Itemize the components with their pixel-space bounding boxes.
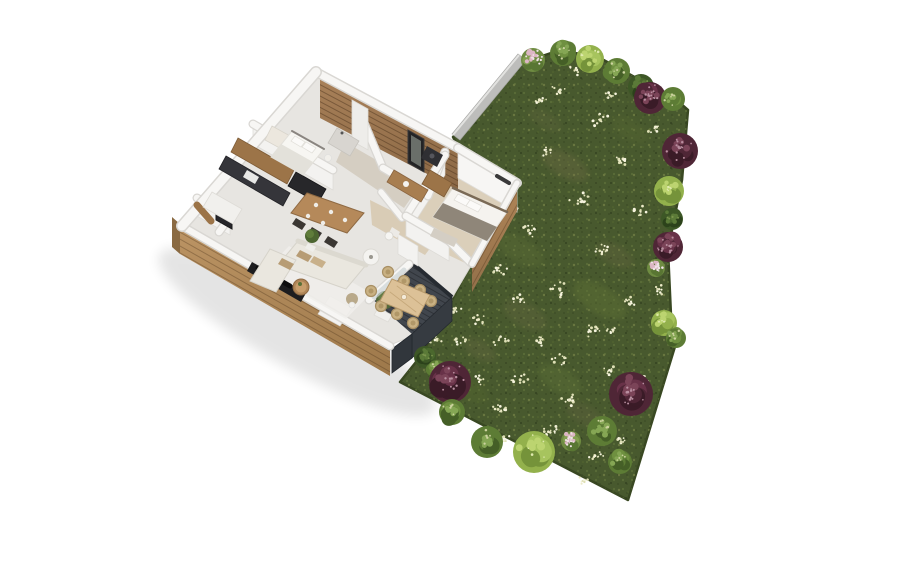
bush-purple-2-flower-dot <box>683 157 685 159</box>
flower-dot <box>519 382 521 384</box>
bush-purple-1-flower-dot <box>653 90 655 92</box>
flower-dot <box>612 329 615 332</box>
flower-dot <box>550 425 552 427</box>
flower-dot <box>571 393 574 396</box>
flower-dot <box>603 249 605 251</box>
flower-dot <box>656 290 658 292</box>
flower-dot <box>513 301 515 303</box>
terrace-chair-seat <box>395 312 400 317</box>
bush-green-top-2-flower-dot <box>611 62 613 64</box>
flower-dot <box>583 195 585 197</box>
flower-dot <box>480 384 482 386</box>
bush-purple-1-flower-dot <box>644 98 646 100</box>
bush-purple-4-flower-dot <box>631 390 633 392</box>
bush-green-tip-flower-dot <box>624 456 626 458</box>
vase <box>349 302 355 308</box>
flower-dot <box>523 301 525 303</box>
flower-dot <box>618 161 621 164</box>
bush-green-top-1-highlight <box>556 45 560 49</box>
bush-lightgreen-right-flower-dot <box>667 190 668 191</box>
bush-purple-5-flower-dot <box>453 372 455 374</box>
flower-dot <box>505 440 507 442</box>
bush-darkgreen-right-flower-dot <box>671 216 673 218</box>
flower-dot <box>564 88 566 90</box>
flower-dot <box>492 406 494 408</box>
toilet <box>385 232 393 240</box>
side-table-decor <box>369 255 373 259</box>
flower-dot <box>550 430 552 432</box>
bush-pink-bottom-flower-dot <box>571 433 573 435</box>
flower-dot <box>514 375 516 377</box>
flower-dot <box>591 458 594 461</box>
flower-dot <box>639 213 642 216</box>
bush-purple-4-flower-dot <box>627 391 630 394</box>
flower-dot <box>612 365 615 368</box>
bush-lightgreen-bottom-flower-dot <box>531 453 534 456</box>
flower-dot <box>462 336 464 338</box>
bush-darkgreen-right-flower-dot <box>667 217 669 219</box>
bush-green-right-flower-dot <box>678 330 680 332</box>
flower-dot <box>581 483 583 485</box>
flower-dot <box>594 455 596 457</box>
bush-green-tip-flower-dot <box>622 454 624 456</box>
bush-green-top-1-flower-dot <box>568 50 569 51</box>
flower-dot <box>611 369 613 371</box>
bush-purple-5-flower-dot <box>449 380 451 382</box>
bush-green-top-3-highlight <box>666 93 670 97</box>
flower-dot <box>456 311 458 313</box>
flower-dot <box>561 364 563 366</box>
bush-purple-3-flower-dot <box>661 247 664 250</box>
flower-dot <box>568 399 571 402</box>
flower-dot <box>527 225 529 227</box>
bush-green-bottom-1-flower-dot <box>605 427 607 429</box>
bush-purple-5-highlight <box>435 374 442 381</box>
flower-dot <box>620 439 622 441</box>
flower-dot <box>595 250 597 252</box>
flower-dot <box>562 355 564 357</box>
terrace-chair-seat <box>402 279 407 284</box>
bush-purple-3-flower-dot <box>657 247 659 249</box>
flower-dot <box>616 156 618 158</box>
bush-purple-4-flower-dot <box>630 388 632 390</box>
bush-lightgreen-bottom-highlight <box>534 437 541 444</box>
bush-lightgreen-right-flower-dot <box>670 188 672 190</box>
flower-dot <box>563 356 566 359</box>
bush-pink-top-highlight <box>526 50 531 55</box>
flower-dot <box>520 375 522 377</box>
flower-dot <box>623 163 626 166</box>
dining-plate <box>321 221 325 225</box>
bush-green-right-flower-dot <box>669 335 671 337</box>
bush-pink-right-flower-dot <box>651 261 653 263</box>
flower-dot <box>500 272 502 274</box>
bush-purple-5-flower-dot <box>455 384 457 386</box>
bush-pink-bottom-highlight <box>564 432 568 436</box>
flower-dot <box>610 332 612 334</box>
bush-green-top-1-highlight <box>565 45 569 49</box>
bush-lightgreen-bottom-highlight <box>516 444 523 451</box>
flower-dot <box>454 307 457 310</box>
bush-green-top-1-highlight <box>562 50 567 55</box>
bush-green-bottom-3-flower-dot <box>450 405 452 407</box>
flower-dot <box>606 115 609 118</box>
flower-dot <box>605 92 607 94</box>
bush-pink-top-flower-dot <box>532 54 534 56</box>
bush-green-tip-flower-dot <box>620 459 622 461</box>
flower-dot <box>523 373 525 375</box>
flower-dot <box>598 249 601 252</box>
flower-dot <box>657 294 659 296</box>
flower-dot <box>482 378 484 380</box>
plant-living-hi <box>306 230 314 238</box>
terrace-chair-seat <box>411 321 416 326</box>
flower-dot <box>577 71 579 73</box>
flower-dot <box>583 479 585 481</box>
flower-dot <box>605 249 608 252</box>
washer-door <box>430 154 435 159</box>
flower-dot <box>587 332 589 334</box>
flower-dot <box>545 151 547 153</box>
flower-dot <box>660 289 662 291</box>
flower-dot <box>543 430 546 433</box>
flower-dot <box>553 361 556 364</box>
flower-dot <box>563 282 566 285</box>
bush-green-bottom-3-highlight <box>445 406 450 411</box>
flower-dot <box>519 293 522 296</box>
flower-dot <box>516 296 518 298</box>
bush-green-top-1-flower-dot <box>561 57 563 59</box>
bush-green-top-2-flower-dot <box>613 76 615 78</box>
bush-purple-4-flower-dot <box>627 402 629 404</box>
bush-purple-1-flower-dot <box>644 93 646 95</box>
isometric-floor-plan-scene <box>0 0 900 574</box>
flower-dot <box>607 91 610 94</box>
flower-dot <box>620 441 623 444</box>
flower-dot <box>579 476 581 478</box>
flower-dot <box>507 339 510 342</box>
bush-purple-4-flower-dot <box>629 398 632 401</box>
bush-darkgreen-right-highlight <box>665 210 669 214</box>
flower-dot <box>499 405 502 408</box>
flower-dot <box>559 353 561 355</box>
flower-dot <box>541 97 543 99</box>
flower-dot <box>660 284 663 287</box>
bush-darkgreen-terrace-highlight <box>422 348 426 352</box>
dining-plate <box>343 218 347 222</box>
bush-pink-top-highlight <box>525 59 529 63</box>
flower-dot <box>640 211 642 213</box>
flower-dot <box>512 380 515 383</box>
flower-dot <box>512 297 515 300</box>
bush-purple-4-flower-dot <box>626 386 628 388</box>
bush-purple-3-flower-dot <box>672 237 674 239</box>
bush-purple-1-highlight <box>639 95 643 99</box>
bush-green-tip-highlight <box>617 451 621 455</box>
flower-dot <box>603 368 605 370</box>
flower-dot <box>604 245 606 247</box>
bush-pink-bottom-flower-dot <box>566 443 568 445</box>
bush-green-top-2-flower-dot <box>616 69 618 71</box>
flower-dot <box>559 281 561 283</box>
bush-green-top-2-highlight <box>618 63 623 68</box>
bush-pink-right-flower-dot <box>657 263 659 265</box>
flower-dot <box>496 269 499 272</box>
bush-purple-4-highlight <box>631 383 639 391</box>
bush-green-top-3-highlight <box>672 96 676 100</box>
bush-green-bottom-1-highlight <box>591 429 596 434</box>
flower-dot <box>553 87 555 89</box>
flower-dot <box>478 381 480 383</box>
flower-dot <box>435 338 437 340</box>
flower-dot <box>607 97 609 99</box>
flower-dot <box>506 267 508 269</box>
flower-dot <box>568 199 570 201</box>
bush-purple-2-flower-dot <box>690 143 692 145</box>
terrace-chair-seat <box>386 270 391 275</box>
flower-dot <box>597 456 599 458</box>
bush-purple-1-flower-dot <box>654 84 656 86</box>
bush-purple-4-flower-dot <box>631 398 633 400</box>
flower-dot <box>579 198 582 201</box>
flower-dot <box>477 377 480 380</box>
flower-dot <box>610 95 612 97</box>
flower-dot <box>606 246 609 249</box>
bush-green-top-3-flower-dot <box>673 94 675 96</box>
flower-dot <box>549 149 552 152</box>
bush-darkgreen-terrace-flower-dot <box>424 354 426 356</box>
bush-pink-top-flower-dot <box>541 56 543 58</box>
flower-dot <box>623 159 625 161</box>
bush-purple-1-flower-dot <box>651 92 653 94</box>
bush-green-top-3-flower-dot <box>670 96 672 98</box>
bush-pink-right-flower-dot <box>656 265 658 267</box>
flower-dot <box>588 324 590 326</box>
bush-green-bottom-3-flower-dot <box>453 413 455 415</box>
bush-green-top-2-flower-dot <box>623 71 626 74</box>
bush-pink-bottom-flower-dot <box>570 445 572 447</box>
bush-green-bottom-2-flower-dot <box>489 435 491 437</box>
dining-plate <box>329 210 333 214</box>
bush-darkgreen-terrace-flower-dot <box>431 355 433 357</box>
flower-dot <box>657 125 659 127</box>
flower-dot <box>464 338 467 341</box>
flower-dot <box>551 86 553 88</box>
flower-dot <box>570 67 572 69</box>
flower-dot <box>555 428 557 430</box>
bush-purple-5-flower-dot <box>448 367 450 369</box>
flower-dot <box>498 339 500 341</box>
terrace-centerpiece <box>401 294 406 299</box>
bush-lightgreen-bottom-highlight <box>527 440 535 448</box>
bush-lightgreen-top-highlight <box>588 53 593 58</box>
bush-purple-1-flower-dot <box>650 94 652 96</box>
bush-green-tip-flower-dot <box>616 459 618 461</box>
bush-lightgreen-top-flower-dot <box>582 54 584 56</box>
flower-dot <box>499 336 501 338</box>
flower-dot <box>660 293 663 296</box>
flower-dot <box>502 273 505 276</box>
flower-dot <box>594 329 597 332</box>
flower-dot <box>527 230 529 232</box>
flower-dot <box>559 296 562 299</box>
bush-purple-5-flower-dot <box>442 365 444 367</box>
flower-dot <box>554 284 556 286</box>
flower-dot <box>583 481 585 483</box>
flower-dot <box>656 127 658 129</box>
bush-lightgreen-bottom-flower-dot <box>543 456 544 457</box>
flower-dot <box>494 408 497 411</box>
flower-dot <box>602 455 604 457</box>
bush-lightgreen-top-flower-dot <box>594 50 596 52</box>
flower-dot <box>460 308 462 310</box>
flower-dot <box>519 378 522 381</box>
flower-dot <box>535 339 538 342</box>
flower-dot <box>630 302 632 304</box>
bush-purple-5-flower-dot <box>451 377 453 379</box>
bush-purple-5-flower-dot <box>453 388 455 390</box>
bush-purple-1-flower-dot <box>648 86 650 88</box>
flower-dot <box>582 200 585 203</box>
flower-dot <box>483 315 485 317</box>
flower-dot <box>532 236 534 238</box>
flower-dot <box>547 430 550 433</box>
bush-lightgreen-right-2-highlight <box>661 311 667 317</box>
bush-pink-bottom-flower-dot <box>568 442 570 444</box>
flower-dot <box>586 203 588 205</box>
flower-dot <box>460 342 462 344</box>
flower-dot <box>645 211 648 214</box>
flower-dot <box>588 456 590 458</box>
bush-green-tip-highlight <box>610 461 615 466</box>
bush-lightgreen-top-highlight <box>587 61 592 66</box>
flower-dot <box>593 124 596 127</box>
flower-dot <box>478 374 480 376</box>
terrace-chair-seat <box>379 304 384 309</box>
bush-darkgreen-right-flower-dot <box>668 218 670 220</box>
flower-dot <box>608 369 611 372</box>
flower-dot <box>534 228 536 230</box>
bush-purple-2-flower-dot <box>666 150 668 152</box>
bush-green-tip-flower-dot <box>618 457 620 459</box>
flower-dot <box>620 437 622 439</box>
flower-dot <box>454 339 456 341</box>
shower-head <box>341 132 344 135</box>
bush-purple-5-flower-dot <box>455 376 457 378</box>
flower-dot <box>529 232 532 235</box>
flower-dot <box>545 149 547 151</box>
bed1-nightstand <box>325 155 332 162</box>
flower-dot <box>614 93 617 96</box>
flower-dot <box>633 208 636 211</box>
flower-dot <box>542 154 544 156</box>
flower-dot <box>500 409 502 411</box>
flower-dot <box>601 251 603 253</box>
bush-green-right-highlight <box>669 339 672 342</box>
flower-dot <box>599 330 601 332</box>
dining-plate <box>314 203 318 207</box>
flower-dot <box>456 343 459 346</box>
bush-purple-1-flower-dot <box>650 98 652 100</box>
coffee-table-plant <box>298 282 302 286</box>
bush-lightgreen-bottom-flower-dot <box>528 448 529 449</box>
flower-dot <box>503 438 505 440</box>
bush-purple-5-flower-dot <box>459 366 461 368</box>
bush-darkgreen-top-flower-dot <box>646 80 648 82</box>
flower-dot <box>476 314 478 316</box>
flower-dot <box>556 427 558 429</box>
bush-green-right-flower-dot <box>672 333 674 335</box>
bush-pink-top-highlight <box>529 58 532 61</box>
flower-dot <box>520 298 523 301</box>
bush-purple-3-flower-dot <box>662 239 664 241</box>
flower-dot <box>562 362 565 365</box>
flower-dot <box>587 335 589 337</box>
flower-dot <box>540 344 542 346</box>
flower-dot <box>519 301 521 303</box>
bush-pink-top-flower-dot <box>532 58 534 60</box>
flower-dot <box>598 119 600 121</box>
flower-dot <box>610 371 612 373</box>
flower-dot <box>498 270 500 272</box>
bush-purple-1-flower-dot <box>656 97 658 99</box>
bush-purple-5-flower-dot <box>462 379 464 381</box>
bush-lightgreen-bottom-flower-dot <box>543 441 545 443</box>
flower-dot <box>539 99 541 101</box>
bath-basin <box>403 181 409 187</box>
flower-dot <box>543 428 545 430</box>
flower-dot <box>556 93 559 96</box>
flower-dot <box>474 323 477 326</box>
bush-green-bottom-2-highlight <box>486 441 491 446</box>
bush-pink-bottom-flower-dot <box>565 439 567 441</box>
flower-dot <box>550 152 552 154</box>
flower-dot <box>453 310 455 312</box>
flower-dot <box>538 336 540 338</box>
bush-purple-3-flower-dot <box>658 249 660 251</box>
flower-dot <box>559 90 561 92</box>
bush-pink-bottom-flower-dot <box>570 440 572 442</box>
flower-dot <box>481 321 484 324</box>
flower-dot <box>560 397 563 400</box>
bush-purple-5-flower-dot <box>450 386 452 388</box>
bush-purple-2-flower-dot <box>675 144 677 146</box>
bush-purple-3-flower-dot <box>666 244 668 246</box>
flower-dot <box>473 316 476 319</box>
flower-dot <box>553 430 555 432</box>
floor-plan-render-canvas <box>0 0 900 574</box>
flower-dot <box>588 329 590 331</box>
bush-green-bottom-1-flower-dot <box>598 420 600 422</box>
flower-dot <box>531 229 533 231</box>
bush-lightgreen-right-2-flower-dot <box>661 320 663 322</box>
flower-dot <box>504 338 506 340</box>
flower-dot <box>623 437 625 439</box>
bush-lightgreen-right-flower-dot <box>667 186 669 188</box>
bush-green-top-3-flower-dot <box>671 93 673 95</box>
bush-darkgreen-terrace-flower-dot <box>428 357 430 359</box>
flower-dot <box>504 407 507 410</box>
flower-dot <box>607 371 609 373</box>
flower-dot <box>601 244 603 246</box>
flower-dot <box>607 328 609 330</box>
flower-dot <box>626 300 628 302</box>
bush-green-bottom-2-flower-dot <box>483 442 485 444</box>
flower-dot <box>538 341 540 343</box>
bush-green-right-flower-dot <box>674 337 676 339</box>
flower-dot <box>571 396 574 399</box>
bush-purple-3-highlight <box>669 236 674 241</box>
